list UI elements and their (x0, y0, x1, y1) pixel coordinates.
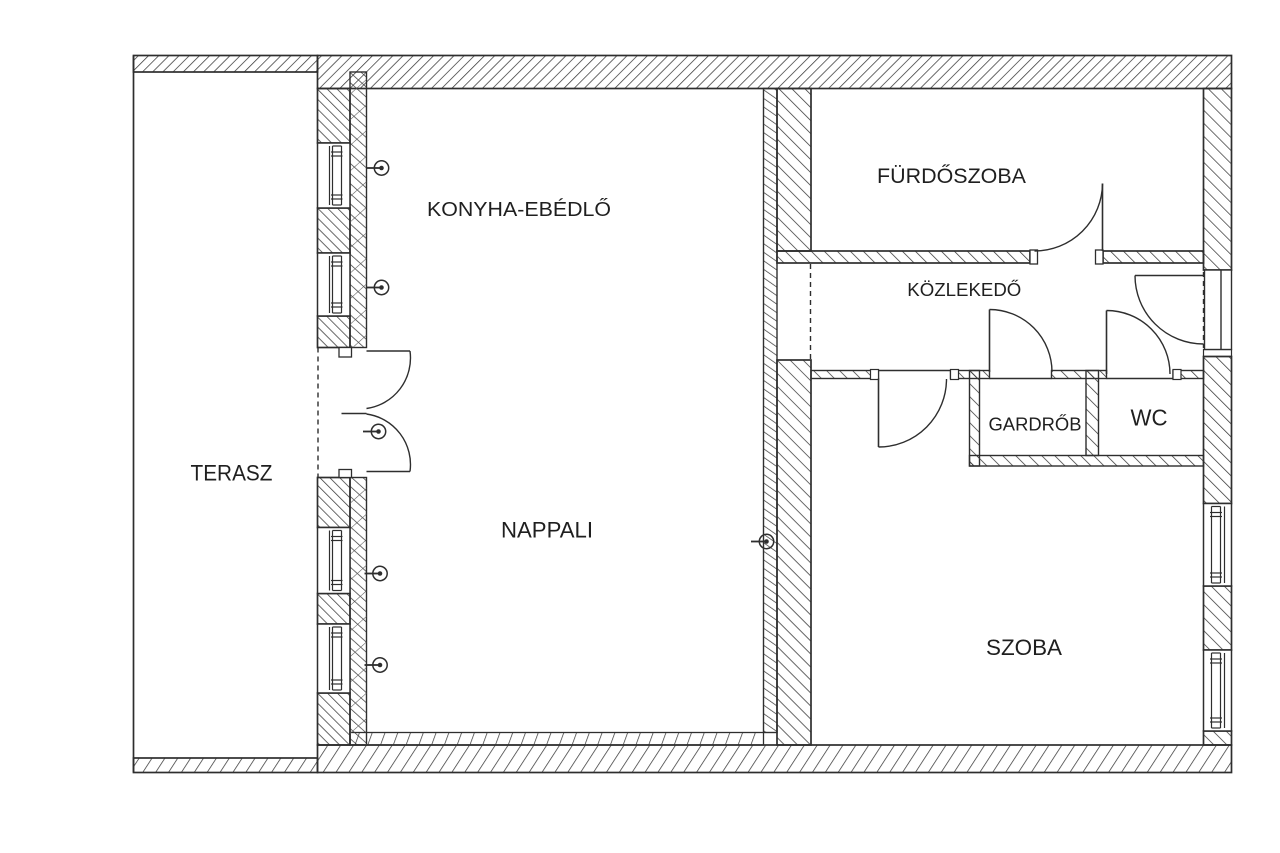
svg-text:WC: WC (1131, 405, 1168, 431)
svg-text:GARDRŐB: GARDRŐB (989, 414, 1082, 435)
svg-text:SZOBA: SZOBA (986, 635, 1062, 660)
svg-text:TERASZ: TERASZ (191, 461, 273, 486)
svg-text:FÜRDŐSZOBA: FÜRDŐSZOBA (877, 163, 1027, 188)
svg-text:KÖZLEKEDŐ: KÖZLEKEDŐ (907, 279, 1021, 300)
svg-text:NAPPALI: NAPPALI (501, 518, 593, 543)
svg-text:KONYHA-EBÉDLŐ: KONYHA-EBÉDLŐ (427, 198, 611, 221)
